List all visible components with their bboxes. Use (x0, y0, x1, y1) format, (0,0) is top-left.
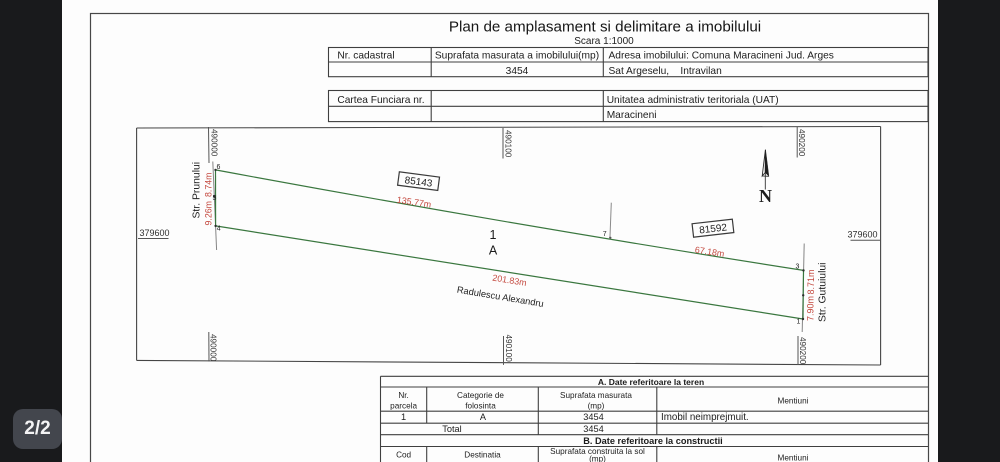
svg-text:Total: Total (442, 424, 461, 434)
svg-text:Destinatia: Destinatia (464, 451, 501, 460)
svg-text:Maracineni: Maracineni (607, 110, 657, 121)
svg-text:Nr. cadastral: Nr. cadastral (337, 51, 394, 62)
svg-text:(mp): (mp) (588, 402, 605, 411)
svg-text:Cartea Funciara nr.: Cartea Funciara nr. (337, 95, 424, 106)
svg-text:Mentiuni: Mentiuni (778, 397, 809, 406)
svg-text:Cod: Cod (396, 451, 411, 460)
svg-text:379600: 379600 (139, 228, 169, 238)
svg-text:85143: 85143 (404, 175, 433, 190)
svg-text:1: 1 (490, 228, 497, 242)
svg-text:490100: 490100 (503, 130, 512, 158)
svg-text:135.77m: 135.77m (396, 195, 432, 210)
svg-text:6: 6 (217, 164, 221, 171)
svg-text:Plan de amplasament si delimit: Plan de amplasament si delimitare a imob… (449, 19, 761, 36)
svg-text:Unitatea administrativ teritor: Unitatea administrativ teritoriala (UAT) (607, 95, 779, 106)
svg-text:Nr.: Nr. (398, 391, 408, 400)
svg-text:Sat Argeselu, Intravilan: Sat Argeselu, Intravilan (609, 66, 722, 77)
svg-text:A: A (480, 412, 487, 422)
svg-text:490000: 490000 (210, 129, 219, 157)
svg-text:67.18m: 67.18m (694, 245, 725, 259)
svg-text:490000: 490000 (209, 334, 218, 362)
svg-text:Scara 1:1000: Scara 1:1000 (574, 36, 634, 47)
svg-text:81592: 81592 (699, 222, 728, 236)
svg-text:8.71m: 8.71m (806, 269, 816, 294)
svg-text:4: 4 (217, 226, 221, 233)
svg-text:490200: 490200 (797, 129, 806, 157)
svg-text:1: 1 (797, 319, 801, 326)
svg-text:7.90m: 7.90m (806, 296, 816, 321)
svg-text:Mentiuni: Mentiuni (778, 454, 809, 462)
svg-text:Str. Gutuiului: Str. Gutuiului (818, 263, 829, 323)
svg-text:B. Date referitoare la constru: B. Date referitoare la constructii (583, 436, 722, 446)
svg-text:A: A (489, 244, 498, 258)
svg-text:Str. Prunului: Str. Prunului (192, 162, 203, 219)
svg-text:Suprafata masurata: Suprafata masurata (560, 391, 632, 400)
svg-text:(mp): (mp) (589, 455, 606, 462)
svg-text:9.26m: 9.26m (204, 201, 214, 225)
svg-text:379600: 379600 (847, 230, 877, 240)
svg-text:parcela: parcela (390, 402, 417, 411)
svg-text:Radulescu Alexandru: Radulescu Alexandru (456, 285, 544, 309)
svg-text:Categorie de: Categorie de (457, 391, 504, 400)
svg-text:A. Date referitoare la teren: A. Date referitoare la teren (598, 377, 704, 387)
svg-text:490200: 490200 (798, 337, 807, 365)
svg-text:490100: 490100 (504, 335, 513, 363)
svg-text:8.74m: 8.74m (204, 173, 214, 197)
svg-text:3454: 3454 (583, 424, 603, 434)
svg-text:3454: 3454 (583, 412, 603, 422)
svg-text:7: 7 (603, 231, 607, 238)
svg-text:3: 3 (796, 264, 800, 271)
svg-text:folosinta: folosinta (465, 402, 496, 411)
svg-text:N: N (759, 186, 772, 206)
svg-text:Adresa imobilului: Comuna Mara: Adresa imobilului: Comuna Maracineni Jud… (609, 51, 834, 62)
svg-text:Suprafata masurata a imobilulu: Suprafata masurata a imobilului(mp) (435, 51, 599, 62)
svg-text:Imobil neimprejmuit.: Imobil neimprejmuit. (661, 412, 749, 423)
svg-text:3454: 3454 (506, 66, 529, 77)
svg-text:1: 1 (401, 412, 406, 422)
